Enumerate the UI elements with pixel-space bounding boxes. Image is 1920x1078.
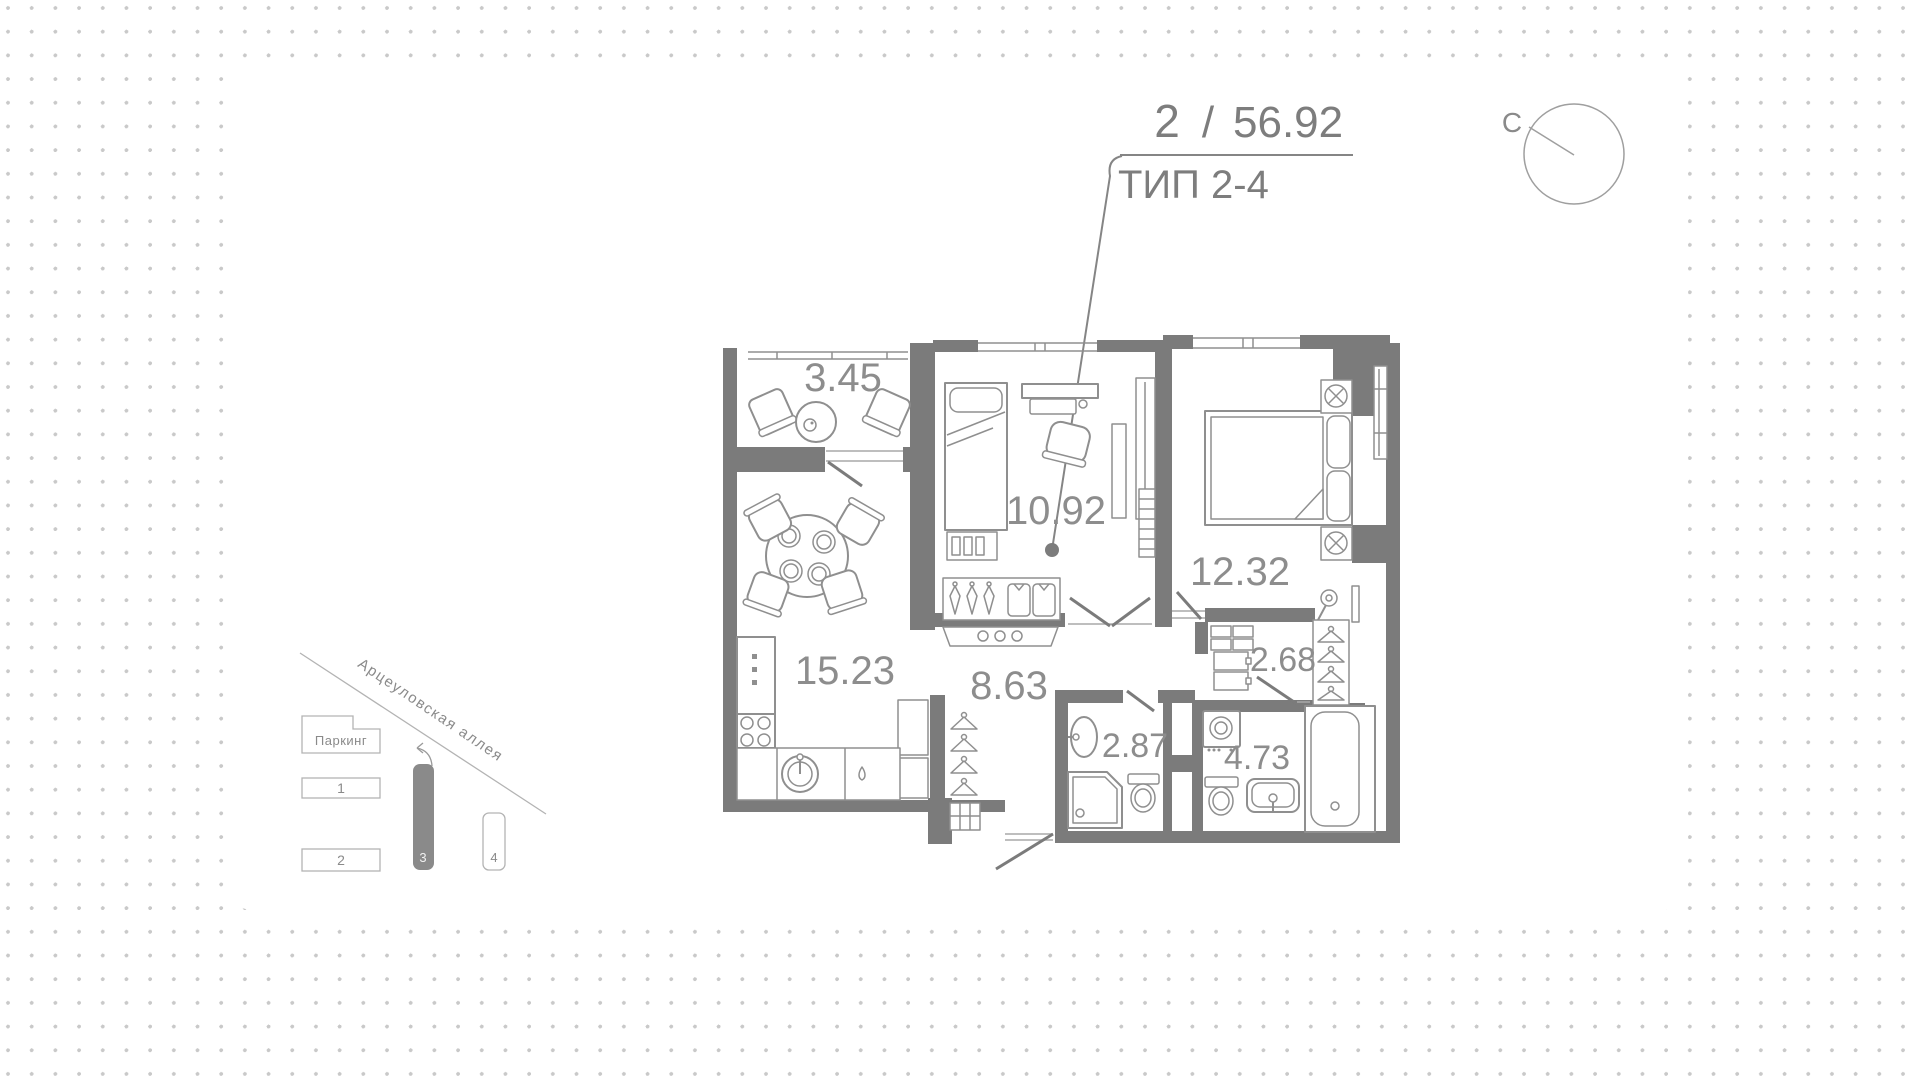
building-3-active[interactable]: 3 bbox=[413, 743, 434, 870]
balcony-door-leaf bbox=[828, 462, 862, 486]
header-separator: / bbox=[1202, 98, 1215, 147]
type-label: ТИП 2-4 bbox=[1118, 163, 1269, 207]
fridge-icon bbox=[737, 637, 775, 714]
toilet-icon bbox=[1205, 777, 1238, 815]
desk bbox=[1022, 384, 1098, 398]
drawer bbox=[1214, 652, 1248, 670]
room-label-bedroom-1: 10.92 bbox=[1006, 489, 1106, 533]
bedroom2-door-leaf bbox=[1177, 592, 1201, 619]
rooms-count: 2 bbox=[1154, 95, 1180, 147]
shower-door-leaf bbox=[1127, 691, 1154, 711]
bedroom1-door-leaf2 bbox=[1112, 598, 1150, 626]
kitchen-furniture bbox=[737, 493, 900, 800]
shower-tray-icon bbox=[1068, 772, 1122, 828]
shirt-icon bbox=[1033, 584, 1055, 616]
room-label-balcony: 3.45 bbox=[804, 356, 882, 400]
building-1[interactable]: 1 bbox=[302, 778, 380, 798]
building-4[interactable]: 4 bbox=[483, 813, 505, 870]
room-label-bedroom-2: 12.32 bbox=[1190, 550, 1290, 594]
sink-icon bbox=[1068, 717, 1097, 757]
building-3-label: 3 bbox=[419, 850, 426, 865]
floorplan-page: { "header": { "rooms_count": "2", "separ… bbox=[0, 0, 1920, 1078]
room-label-bathroom: 4.73 bbox=[1224, 739, 1290, 777]
shirt-icon bbox=[1008, 584, 1030, 616]
pillow bbox=[1327, 416, 1350, 468]
room-label-hallway: 8.63 bbox=[970, 664, 1048, 708]
wardrobe-door-leaf bbox=[1257, 677, 1297, 704]
coat-rack bbox=[951, 713, 977, 796]
leader-dot bbox=[1045, 543, 1059, 557]
building-2[interactable]: 2 bbox=[302, 849, 380, 871]
scene: 2 / 56.92 ТИП 2-4 С bbox=[0, 0, 1920, 1078]
north-label: С bbox=[1502, 107, 1522, 138]
room-label-kitchen-living: 15.23 bbox=[795, 649, 895, 693]
desk-chair bbox=[1042, 419, 1094, 467]
laptop bbox=[1030, 399, 1076, 414]
parking-label: Паркинг bbox=[315, 733, 367, 748]
compass: С bbox=[1502, 104, 1624, 204]
kitchen-counter bbox=[737, 748, 900, 800]
room-label-wardrobe: 2.68 bbox=[1250, 641, 1316, 679]
building-1-label: 1 bbox=[337, 780, 345, 796]
vent-shaft-icon bbox=[1321, 380, 1352, 413]
bathtub-icon bbox=[1305, 706, 1375, 832]
vent-shaft-icon bbox=[1321, 527, 1352, 560]
mirror bbox=[1352, 586, 1359, 622]
parking-building[interactable]: Паркинг bbox=[302, 716, 380, 753]
compass-circle bbox=[1524, 104, 1624, 204]
building-2-label: 2 bbox=[337, 852, 345, 868]
shoe-shelf bbox=[950, 803, 980, 830]
compass-needle bbox=[1529, 127, 1574, 155]
total-area: 56.92 bbox=[1233, 98, 1343, 147]
hairdryer-icon bbox=[1318, 590, 1337, 620]
sink-icon bbox=[1247, 779, 1299, 812]
building-4-label: 4 bbox=[490, 850, 497, 865]
floor-plan: 3.45 10.92 12.32 15.23 8.63 2.68 2.87 4.… bbox=[723, 335, 1400, 869]
pillow bbox=[950, 388, 1002, 412]
side-window bbox=[1374, 366, 1387, 459]
room-label-shower-room: 2.87 bbox=[1102, 727, 1168, 765]
balcony-chair bbox=[745, 386, 797, 437]
stove-icon bbox=[737, 714, 775, 748]
drawer bbox=[1214, 672, 1248, 690]
site-minimap: Арцеуловская аллея Паркинг 1 2 3 4 bbox=[300, 653, 546, 871]
toilet-icon bbox=[1128, 774, 1159, 812]
tall-cabinet bbox=[898, 700, 928, 755]
pillow bbox=[1327, 471, 1350, 521]
bedroom1-door-leaf bbox=[1070, 598, 1110, 626]
